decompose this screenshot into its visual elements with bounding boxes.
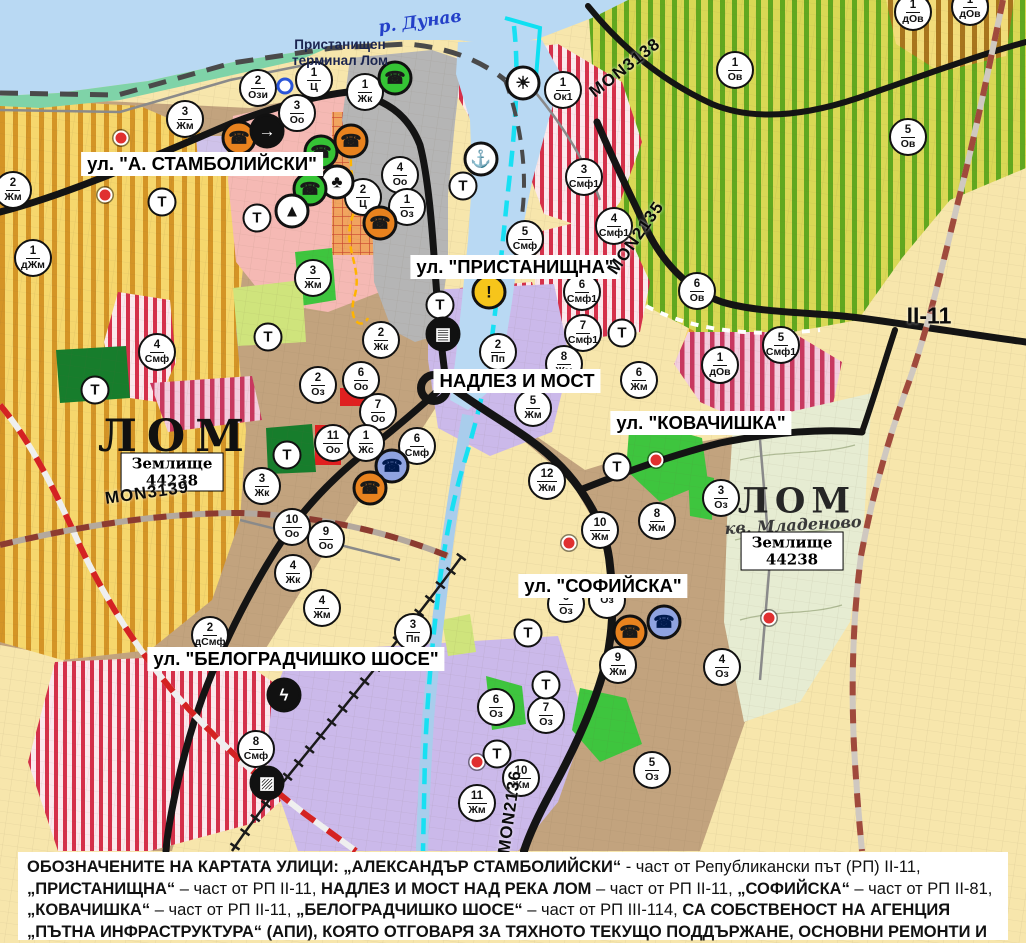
legend-segment: – част от РП II-81, bbox=[850, 880, 993, 898]
map-viewport[interactable]: 2Ози1Ц1Жк3Оо3Жм2Жм1дЖм4Смф1Ок11Ов1дОв1дО… bbox=[0, 0, 1026, 943]
legend-segment: – част от РП III-114, bbox=[523, 901, 683, 919]
legend-segment: „КОВАЧИШКА“ bbox=[27, 901, 150, 919]
legend-segment: НАДЛЕЗ И МОСТ НАД РЕКА ЛОМ bbox=[321, 880, 591, 898]
legend-segment: „БЕЛОГРАДЧИШКО ШОСЕ“ bbox=[296, 901, 523, 919]
legend-segment: ОБОЗНАЧЕНИТЕ НА КАРТАТА УЛИЦИ: „АЛЕКСАНД… bbox=[27, 858, 621, 876]
legend-segment: – част от РП II-11, bbox=[150, 901, 296, 919]
legend-segment: „СОФИЙСКА“ bbox=[737, 880, 850, 898]
map-canvas[interactable] bbox=[0, 0, 1026, 943]
legend-segment: – част от РП II-11, bbox=[591, 880, 737, 898]
legend-segment: – част от РП II-11, bbox=[175, 880, 321, 898]
legend-text: ОБОЗНАЧЕНИТЕ НА КАРТАТА УЛИЦИ: „АЛЕКСАНД… bbox=[18, 852, 1008, 940]
legend-segment: „ПРИСТАНИЩНА“ bbox=[27, 880, 175, 898]
legend-segment: - част от Републикански път (РП) II-11, bbox=[621, 858, 921, 876]
